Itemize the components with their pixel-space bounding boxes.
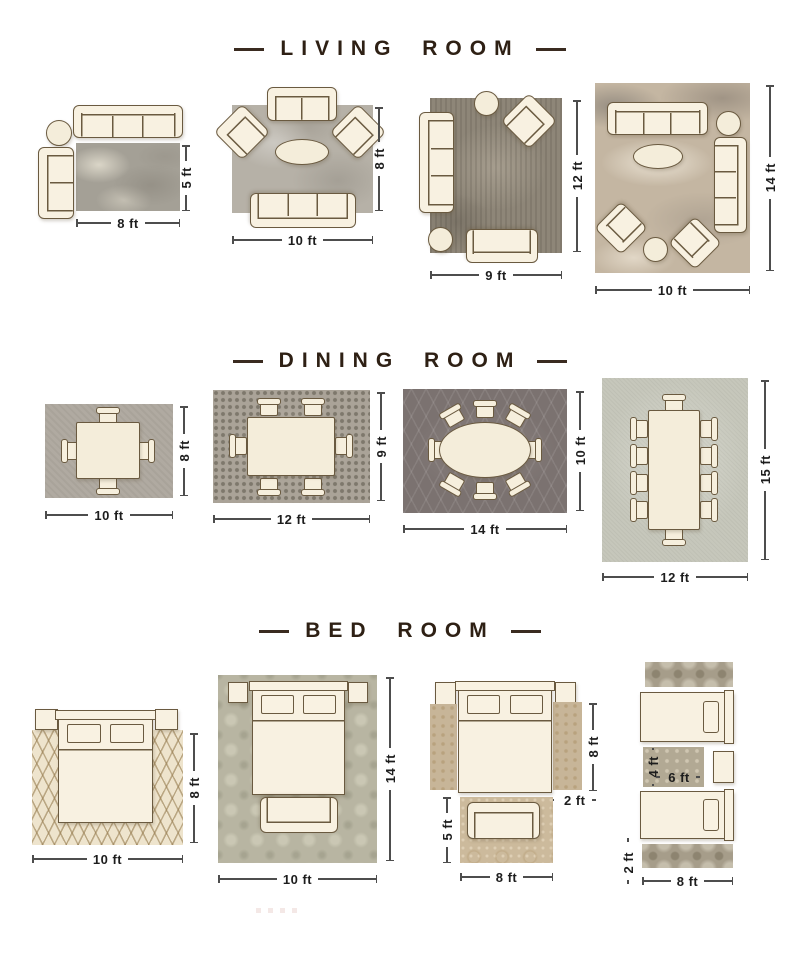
loveseat-icon <box>267 87 337 121</box>
runner-rug <box>642 844 733 868</box>
pillow-icon <box>510 695 543 714</box>
sofa-icon <box>73 105 183 138</box>
coffee-table-icon <box>633 144 683 169</box>
dining-table-icon <box>648 410 700 530</box>
sofa-icon <box>607 102 708 135</box>
dining-chair-icon <box>700 444 718 468</box>
title-dash-right <box>537 360 567 363</box>
dimension-width: 12 ft <box>213 512 370 526</box>
dimension-height: 8 ft <box>177 406 191 496</box>
dining-chair-icon <box>229 434 247 458</box>
section-title-bed-room: BED ROOM <box>305 619 495 643</box>
ottoman-icon <box>428 227 453 252</box>
dimension-runner-width: 2 ft <box>550 793 594 807</box>
dimension-foot-rug-height: 5 ft <box>440 797 454 863</box>
dimension-between-rug-width: 6 ft <box>656 770 702 784</box>
dining-chair-icon <box>700 498 718 522</box>
bed-icon <box>58 711 153 823</box>
dimension-height: 14 ft <box>763 85 777 271</box>
title-dash-left <box>234 48 264 51</box>
pillow-icon <box>110 724 143 743</box>
dining-chair-icon <box>96 477 120 495</box>
dimension-width: 10 ft <box>45 508 173 522</box>
dimension-width: 8 ft <box>76 216 180 230</box>
nightstand-icon <box>155 709 178 730</box>
dimension-height: 14 ft <box>383 677 397 861</box>
dimension-height: 10 ft <box>573 391 587 511</box>
title-dash-left <box>259 630 289 633</box>
side-table-icon <box>716 111 741 136</box>
dimension-width: 10 ft <box>218 872 377 886</box>
ottoman-icon <box>643 237 668 262</box>
dimension-runner-width: 2 ft <box>621 838 635 876</box>
dimension-width: 9 ft <box>430 268 562 282</box>
dining-chair-icon <box>473 400 497 418</box>
rug-size-guide: LIVING ROOM 8 ft 5 ft 8 ft 10 ft 12 ft 9… <box>0 0 800 978</box>
dimension-width: 10 ft <box>595 283 750 297</box>
dimension-width: 10 ft <box>32 852 183 866</box>
dining-table-icon <box>247 417 335 476</box>
dimension-width: 12 ft <box>602 570 748 584</box>
dining-chair-icon <box>257 398 281 416</box>
dining-chair-icon <box>700 417 718 441</box>
dining-chair-icon <box>630 444 648 468</box>
nightstand-icon <box>348 682 368 703</box>
dimension-height: 8 ft <box>187 733 201 843</box>
dining-chair-icon <box>473 482 497 500</box>
dimension-runner-length: 8 ft <box>586 703 600 791</box>
watermark <box>256 908 297 913</box>
nightstand-icon <box>435 682 456 706</box>
dining-table-icon <box>439 422 531 478</box>
dimension-runner-length: 8 ft <box>642 874 733 888</box>
pillow-icon <box>467 695 500 714</box>
twin-bed-icon <box>640 692 734 742</box>
dining-chair-icon <box>301 398 325 416</box>
twin-bed-icon <box>640 791 734 839</box>
bedside-runner-rug <box>553 702 582 790</box>
nightstand-icon <box>228 682 248 703</box>
dining-chair-icon <box>662 528 686 546</box>
bench-icon <box>466 229 538 263</box>
dimension-height: 8 ft <box>372 107 386 211</box>
dining-chair-icon <box>257 478 281 496</box>
dimension-height: 9 ft <box>374 392 388 501</box>
sofa-icon <box>38 147 74 219</box>
dimension-foot-rug-width: 8 ft <box>460 870 553 884</box>
bedside-runner-rug <box>430 704 457 790</box>
title-dash-right <box>536 48 566 51</box>
loveseat-icon <box>467 802 540 839</box>
section-title-dining-room: DINING ROOM <box>279 349 522 373</box>
dining-table-icon <box>76 422 140 479</box>
section-header-living-room: LIVING ROOM <box>0 36 800 62</box>
dining-chair-icon <box>630 471 648 495</box>
section-header-dining-room: DINING ROOM <box>0 348 800 374</box>
section-header-bed-room: BED ROOM <box>0 618 800 644</box>
dining-chair-icon <box>630 498 648 522</box>
bed-icon <box>252 682 345 795</box>
dining-chair-icon <box>630 417 648 441</box>
dining-chair-icon <box>700 471 718 495</box>
sofa-icon <box>419 112 454 213</box>
pillow-icon <box>303 695 336 714</box>
bench-icon <box>260 797 338 833</box>
dimension-height: 5 ft <box>179 145 193 211</box>
runner-rug <box>645 662 733 687</box>
pillow-icon <box>67 724 100 743</box>
coffee-table-icon <box>275 139 329 165</box>
dimension-width: 14 ft <box>403 522 567 536</box>
side-table-icon <box>474 91 499 116</box>
bed-icon <box>458 682 552 793</box>
nightstand-icon <box>713 751 734 783</box>
dimension-width: 10 ft <box>232 233 373 247</box>
living-rug-8x5 <box>76 143 180 211</box>
dining-chair-icon <box>335 434 353 458</box>
side-table-icon <box>46 120 72 146</box>
pillow-icon <box>261 695 294 714</box>
title-dash-left <box>233 360 263 363</box>
dining-chair-icon <box>301 478 325 496</box>
dimension-height: 15 ft <box>758 380 772 560</box>
section-title-living-room: LIVING ROOM <box>280 37 519 61</box>
title-dash-right <box>511 630 541 633</box>
dimension-height: 12 ft <box>570 100 584 252</box>
sofa-icon <box>250 193 356 228</box>
sofa-icon <box>714 137 747 233</box>
